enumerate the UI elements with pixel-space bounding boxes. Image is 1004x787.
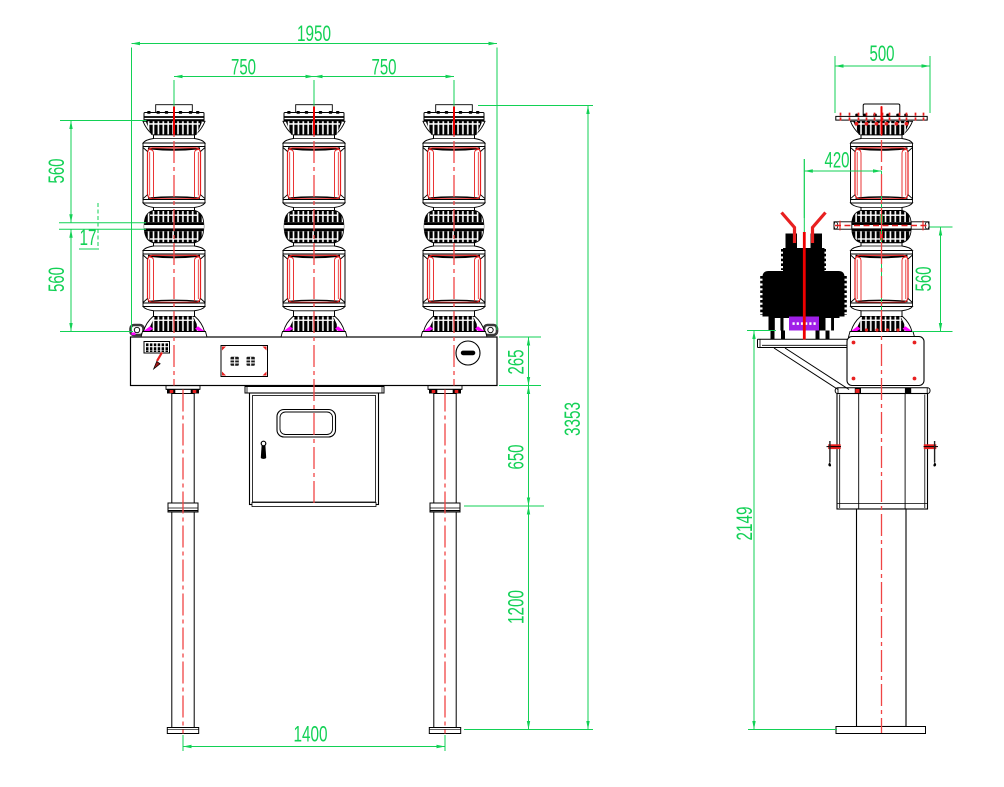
svg-text:1400: 1400 bbox=[294, 722, 328, 747]
svg-text:420: 420 bbox=[825, 148, 850, 173]
svg-text:1200: 1200 bbox=[504, 590, 529, 624]
svg-text:3353: 3353 bbox=[560, 402, 585, 436]
svg-text:265: 265 bbox=[504, 350, 529, 375]
svg-text:560: 560 bbox=[44, 267, 69, 292]
svg-text:560: 560 bbox=[44, 159, 69, 184]
svg-text:750: 750 bbox=[372, 55, 397, 80]
svg-text:500: 500 bbox=[870, 41, 895, 66]
svg-text:650: 650 bbox=[504, 445, 529, 470]
svg-text:17: 17 bbox=[80, 225, 97, 250]
svg-text:560: 560 bbox=[911, 267, 936, 292]
svg-text:1950: 1950 bbox=[297, 21, 331, 46]
svg-text:2149: 2149 bbox=[732, 507, 757, 541]
svg-text:750: 750 bbox=[231, 55, 256, 80]
